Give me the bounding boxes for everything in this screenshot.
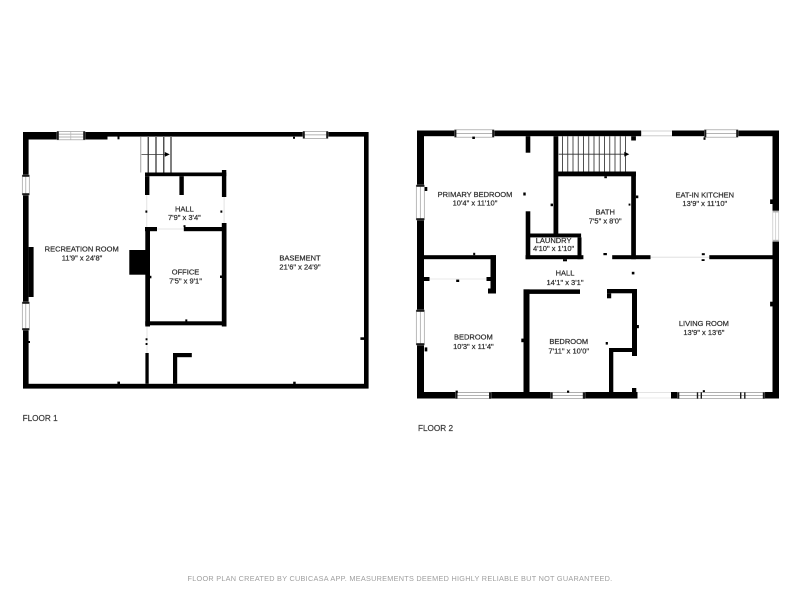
svg-text:FLOOR PLAN CREATED BY CUBICASA: FLOOR PLAN CREATED BY CUBICASA APP. MEAS… [188,574,613,583]
svg-text:BATH: BATH [595,208,614,217]
svg-text:BEDROOM: BEDROOM [454,333,493,342]
svg-text:11'9" x 24'8": 11'9" x 24'8" [62,254,103,263]
svg-text:4'10" x 1'10": 4'10" x 1'10" [533,244,574,253]
svg-text:7'9" x 3'4": 7'9" x 3'4" [168,213,201,222]
svg-text:BEDROOM: BEDROOM [549,337,588,346]
svg-text:7'5" x 8'0": 7'5" x 8'0" [589,216,622,225]
svg-text:21'6" x 24'9": 21'6" x 24'9" [279,263,320,272]
svg-text:10'4" x 11'10": 10'4" x 11'10" [453,198,498,207]
svg-text:RECREATION ROOM: RECREATION ROOM [45,245,119,254]
svg-text:7'11" x 10'0": 7'11" x 10'0" [549,346,590,355]
svg-text:FLOOR 2: FLOOR 2 [418,424,453,433]
svg-text:OFFICE: OFFICE [172,268,200,277]
svg-text:10'3" x 11'4": 10'3" x 11'4" [453,342,494,351]
svg-text:7'5" x 9'1": 7'5" x 9'1" [169,277,202,286]
svg-text:HALL: HALL [175,204,194,213]
svg-text:14'1" x 3'1": 14'1" x 3'1" [547,278,584,287]
svg-text:13'9" x 13'6": 13'9" x 13'6" [683,328,724,337]
svg-text:BASEMENT: BASEMENT [279,253,321,262]
svg-text:FLOOR 1: FLOOR 1 [23,414,58,423]
svg-text:LIVING ROOM: LIVING ROOM [679,319,729,328]
svg-text:13'9" x 11'10": 13'9" x 11'10" [682,199,727,208]
svg-text:HALL: HALL [556,269,575,278]
